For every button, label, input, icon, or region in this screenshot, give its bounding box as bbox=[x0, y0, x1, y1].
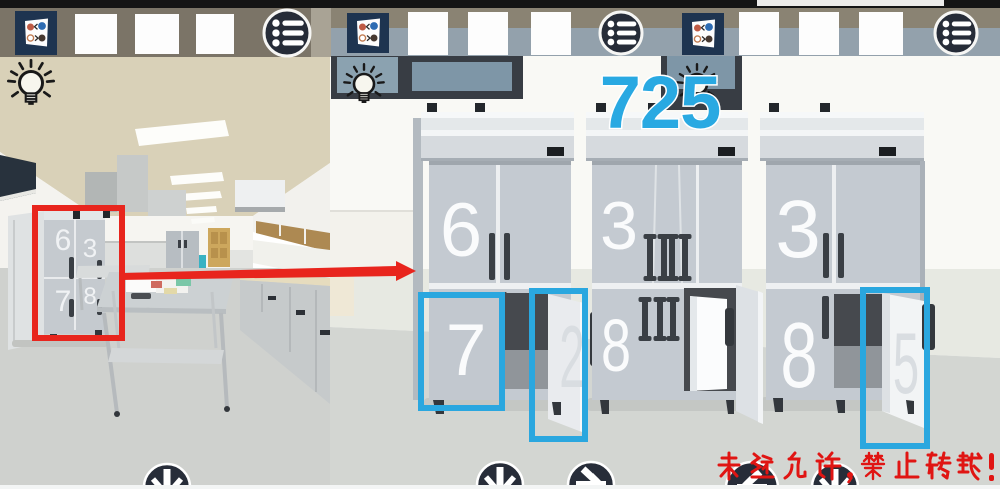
svg-text:3: 3 bbox=[83, 233, 97, 263]
svg-text:2: 2 bbox=[559, 308, 584, 406]
svg-text:7: 7 bbox=[446, 310, 487, 391]
svg-text:5: 5 bbox=[893, 315, 919, 412]
svg-text:6: 6 bbox=[55, 224, 72, 257]
svg-text:8: 8 bbox=[780, 304, 817, 407]
svg-text:3: 3 bbox=[775, 184, 821, 275]
svg-text:6: 6 bbox=[440, 188, 482, 273]
svg-text:3: 3 bbox=[600, 188, 638, 264]
svg-text:8: 8 bbox=[83, 283, 96, 310]
svg-text:7: 7 bbox=[55, 285, 72, 318]
svg-text:725: 725 bbox=[600, 61, 720, 144]
svg-text:8: 8 bbox=[601, 304, 631, 387]
